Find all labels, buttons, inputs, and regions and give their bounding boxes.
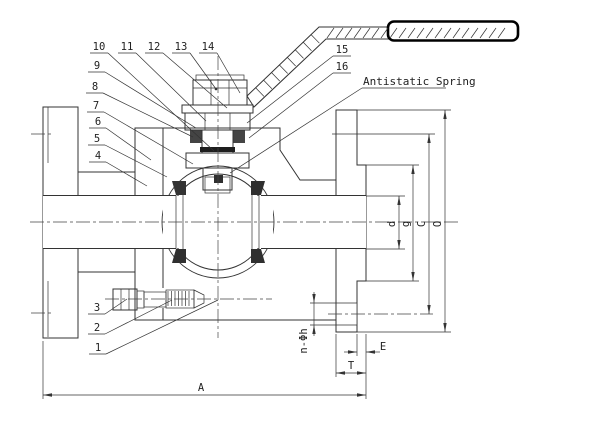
callout-label-1: 1 — [95, 342, 101, 354]
dim-label-g: g — [400, 221, 412, 227]
callout-label-9: 9 — [94, 60, 100, 72]
callout-label-6: 6 — [95, 116, 101, 128]
left-flange-notch-bottom — [44, 281, 48, 337]
callout-label-5: 5 — [94, 133, 100, 145]
dim-label-bolt-holes: n-Φh — [298, 328, 310, 353]
callout-label-11: 11 — [121, 41, 134, 53]
handle — [247, 22, 518, 108]
callout-label-13: 13 — [175, 41, 188, 53]
stem-top-washer — [196, 75, 244, 80]
dim-label-E: E — [380, 341, 386, 353]
callout-label-3: 3 — [94, 302, 100, 314]
drawing-canvas: d g C O n-Φh E T A — [0, 0, 600, 424]
antistatic-spring-label: Antistatic Spring — [363, 75, 476, 88]
packing-right — [233, 130, 245, 143]
callout-label-16: 16 — [336, 61, 349, 73]
callout-label-12: 12 — [148, 41, 161, 53]
callout-label-4: 4 — [95, 150, 101, 162]
antistatic-spring-part — [214, 175, 223, 183]
callout-label-10: 10 — [93, 41, 106, 53]
dim-label-T: T — [348, 360, 355, 372]
callout-label-2: 2 — [94, 322, 100, 334]
callout-label-7: 7 — [93, 100, 99, 112]
dim-label-O: O — [432, 221, 444, 227]
plug-hex-head — [113, 289, 137, 310]
thrust-washer — [200, 147, 235, 152]
callout-label-8: 8 — [92, 81, 98, 93]
left-flange-notch-top — [44, 108, 48, 163]
dim-label-d: d — [386, 221, 398, 227]
dim-label-C: C — [416, 221, 428, 227]
ball-valve-technical-drawing: d g C O n-Φh E T A — [0, 0, 600, 424]
callout-label-15: 15 — [336, 44, 349, 56]
handle-nut — [193, 80, 247, 105]
handle-bar-section — [182, 105, 253, 113]
callout-label-14: 14 — [202, 41, 215, 53]
dim-label-A: A — [198, 382, 205, 394]
